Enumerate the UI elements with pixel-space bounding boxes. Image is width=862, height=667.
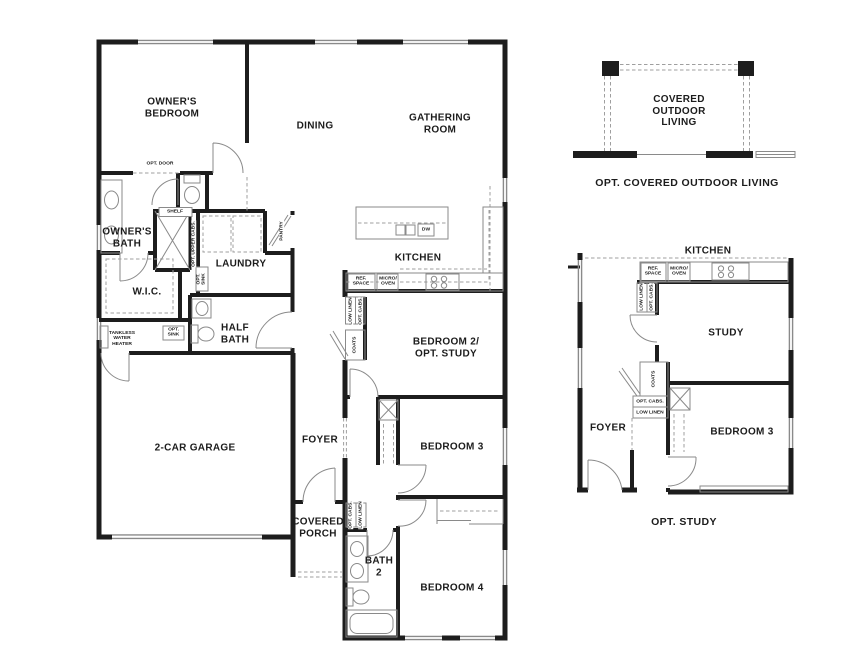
label-shelf: SHELF — [166, 209, 183, 214]
label-dining: DINING — [297, 120, 334, 132]
label-kitchen: KITCHEN — [395, 252, 442, 264]
label-coats: COATS — [352, 336, 357, 354]
label-opt-cabs-bath-hall: OPT. CABS. — [348, 501, 353, 529]
label-owners-bedroom: OWNER'S BEDROOM — [145, 97, 199, 120]
label-covered-porch: COVERED PORCH — [292, 517, 344, 540]
label-gathering-room: GATHERING ROOM — [409, 113, 471, 136]
label-inset-ref-space: REF. SPACE — [644, 267, 662, 278]
label-foyer: FOYER — [302, 434, 338, 446]
label-inset-low-linen-box: LOW LINEN — [636, 410, 664, 415]
label-inset-opt-cabs-box: OPT. CABS. — [636, 399, 664, 404]
opt-study-inset-walls — [568, 253, 793, 495]
label-wic: W.I.C. — [132, 286, 161, 298]
label-bedroom3: BEDROOM 3 — [420, 441, 483, 453]
label-inset-micro-oven: MICRO/ OVEN — [670, 267, 689, 278]
caption-opt-covered-outdoor-living: OPT. COVERED OUTDOOR LIVING — [595, 177, 778, 189]
label-opt-cabs: OPT. CABS. — [358, 297, 363, 325]
label-covered-outdoor-living: COVERED OUTDOOR LIVING — [652, 94, 705, 129]
label-dw: DW — [421, 227, 430, 232]
label-inset-kitchen: KITCHEN — [683, 245, 734, 257]
label-bedroom4: BEDROOM 4 — [420, 582, 483, 594]
label-opt-upper-cabs: OPT. UPPER CABS. — [191, 221, 196, 268]
label-opt-sink-wic: OPT. SINK — [167, 328, 180, 339]
label-garage: 2-CAR GARAGE — [155, 442, 236, 454]
label-inset-study: STUDY — [708, 327, 743, 339]
label-low-linen: LOW LINEN — [348, 297, 353, 325]
main-plan-doors — [101, 143, 426, 556]
label-low-linen-bath-hall: LOW LINEN — [358, 501, 363, 529]
label-laundry: LAUNDRY — [216, 258, 267, 270]
label-inset-coats: COATS — [651, 370, 656, 388]
label-tankless-water-heater: TANKLESS WATER HEATER — [109, 331, 136, 347]
label-pantry: PANTRY — [279, 221, 284, 242]
label-owners-bath: OWNER'S BATH — [102, 227, 151, 250]
label-half-bath: HALF BATH — [221, 323, 249, 346]
main-plan-fixtures — [100, 175, 503, 637]
label-inset-opt-cabs: OPT. CABS. — [649, 283, 654, 311]
label-inset-low-linen: LOW LINEN — [639, 283, 644, 311]
label-opt-sink-laundry: OPT. SINK — [197, 273, 208, 286]
label-inset-bedroom3: BEDROOM 3 — [710, 426, 773, 438]
label-opt-door: OPT. DOOR — [146, 161, 174, 166]
label-micro-oven: MICRO/ OVEN — [379, 277, 398, 288]
floor-plan-canvas: OWNER'S BEDROOM DINING GATHERING ROOM OW… — [0, 0, 862, 667]
label-ref-space: REF. SPACE — [352, 277, 370, 288]
label-inset-foyer: FOYER — [590, 422, 626, 434]
label-bath2: BATH 2 — [365, 556, 393, 579]
caption-opt-study: OPT. STUDY — [651, 516, 717, 528]
label-bedroom2-opt-study: BEDROOM 2/ OPT. STUDY — [413, 337, 479, 360]
